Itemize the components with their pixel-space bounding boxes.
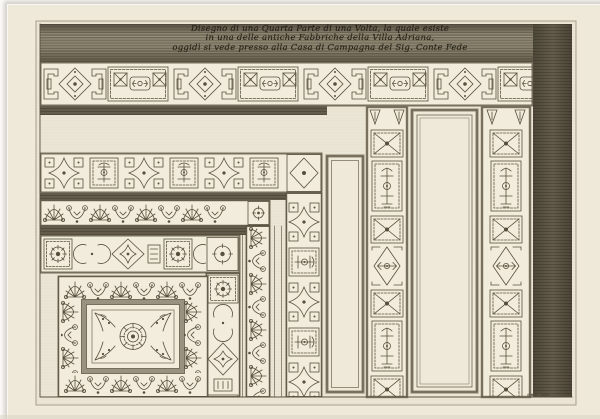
palmette-garland-vertical — [246, 226, 270, 409]
title-line-3: oggidì si vede presso alla Casa di Campa… — [90, 44, 550, 53]
star-panel-frieze-vertical — [286, 193, 322, 419]
palmette-garland-band — [40, 200, 270, 226]
framed-blank-panel-left — [327, 156, 363, 392]
frieze-shadow-strip — [40, 106, 327, 115]
scanned-etching-plate: Disegno di una Quarta Parte di una Volta… — [0, 0, 600, 419]
engraver-signature-mark — [527, 394, 553, 397]
star-panel-frieze-band — [40, 153, 322, 193]
framed-blank-panel-right — [412, 110, 477, 392]
plate-title: Disegno di una Quarta Parte di una Volta… — [90, 25, 550, 53]
outer-frieze-band — [40, 62, 558, 106]
center-coffer — [58, 276, 208, 397]
engraving — [0, 0, 600, 419]
pilaster-band-right — [482, 107, 530, 419]
paper-sheet: Disegno di una Quarta Parte di una Volta… — [7, 4, 600, 419]
pilaster-band-left — [367, 107, 407, 419]
sheet-edge-shadow — [0, 415, 600, 419]
coffer-rosette — [120, 324, 146, 350]
right-margin-band — [533, 24, 572, 397]
